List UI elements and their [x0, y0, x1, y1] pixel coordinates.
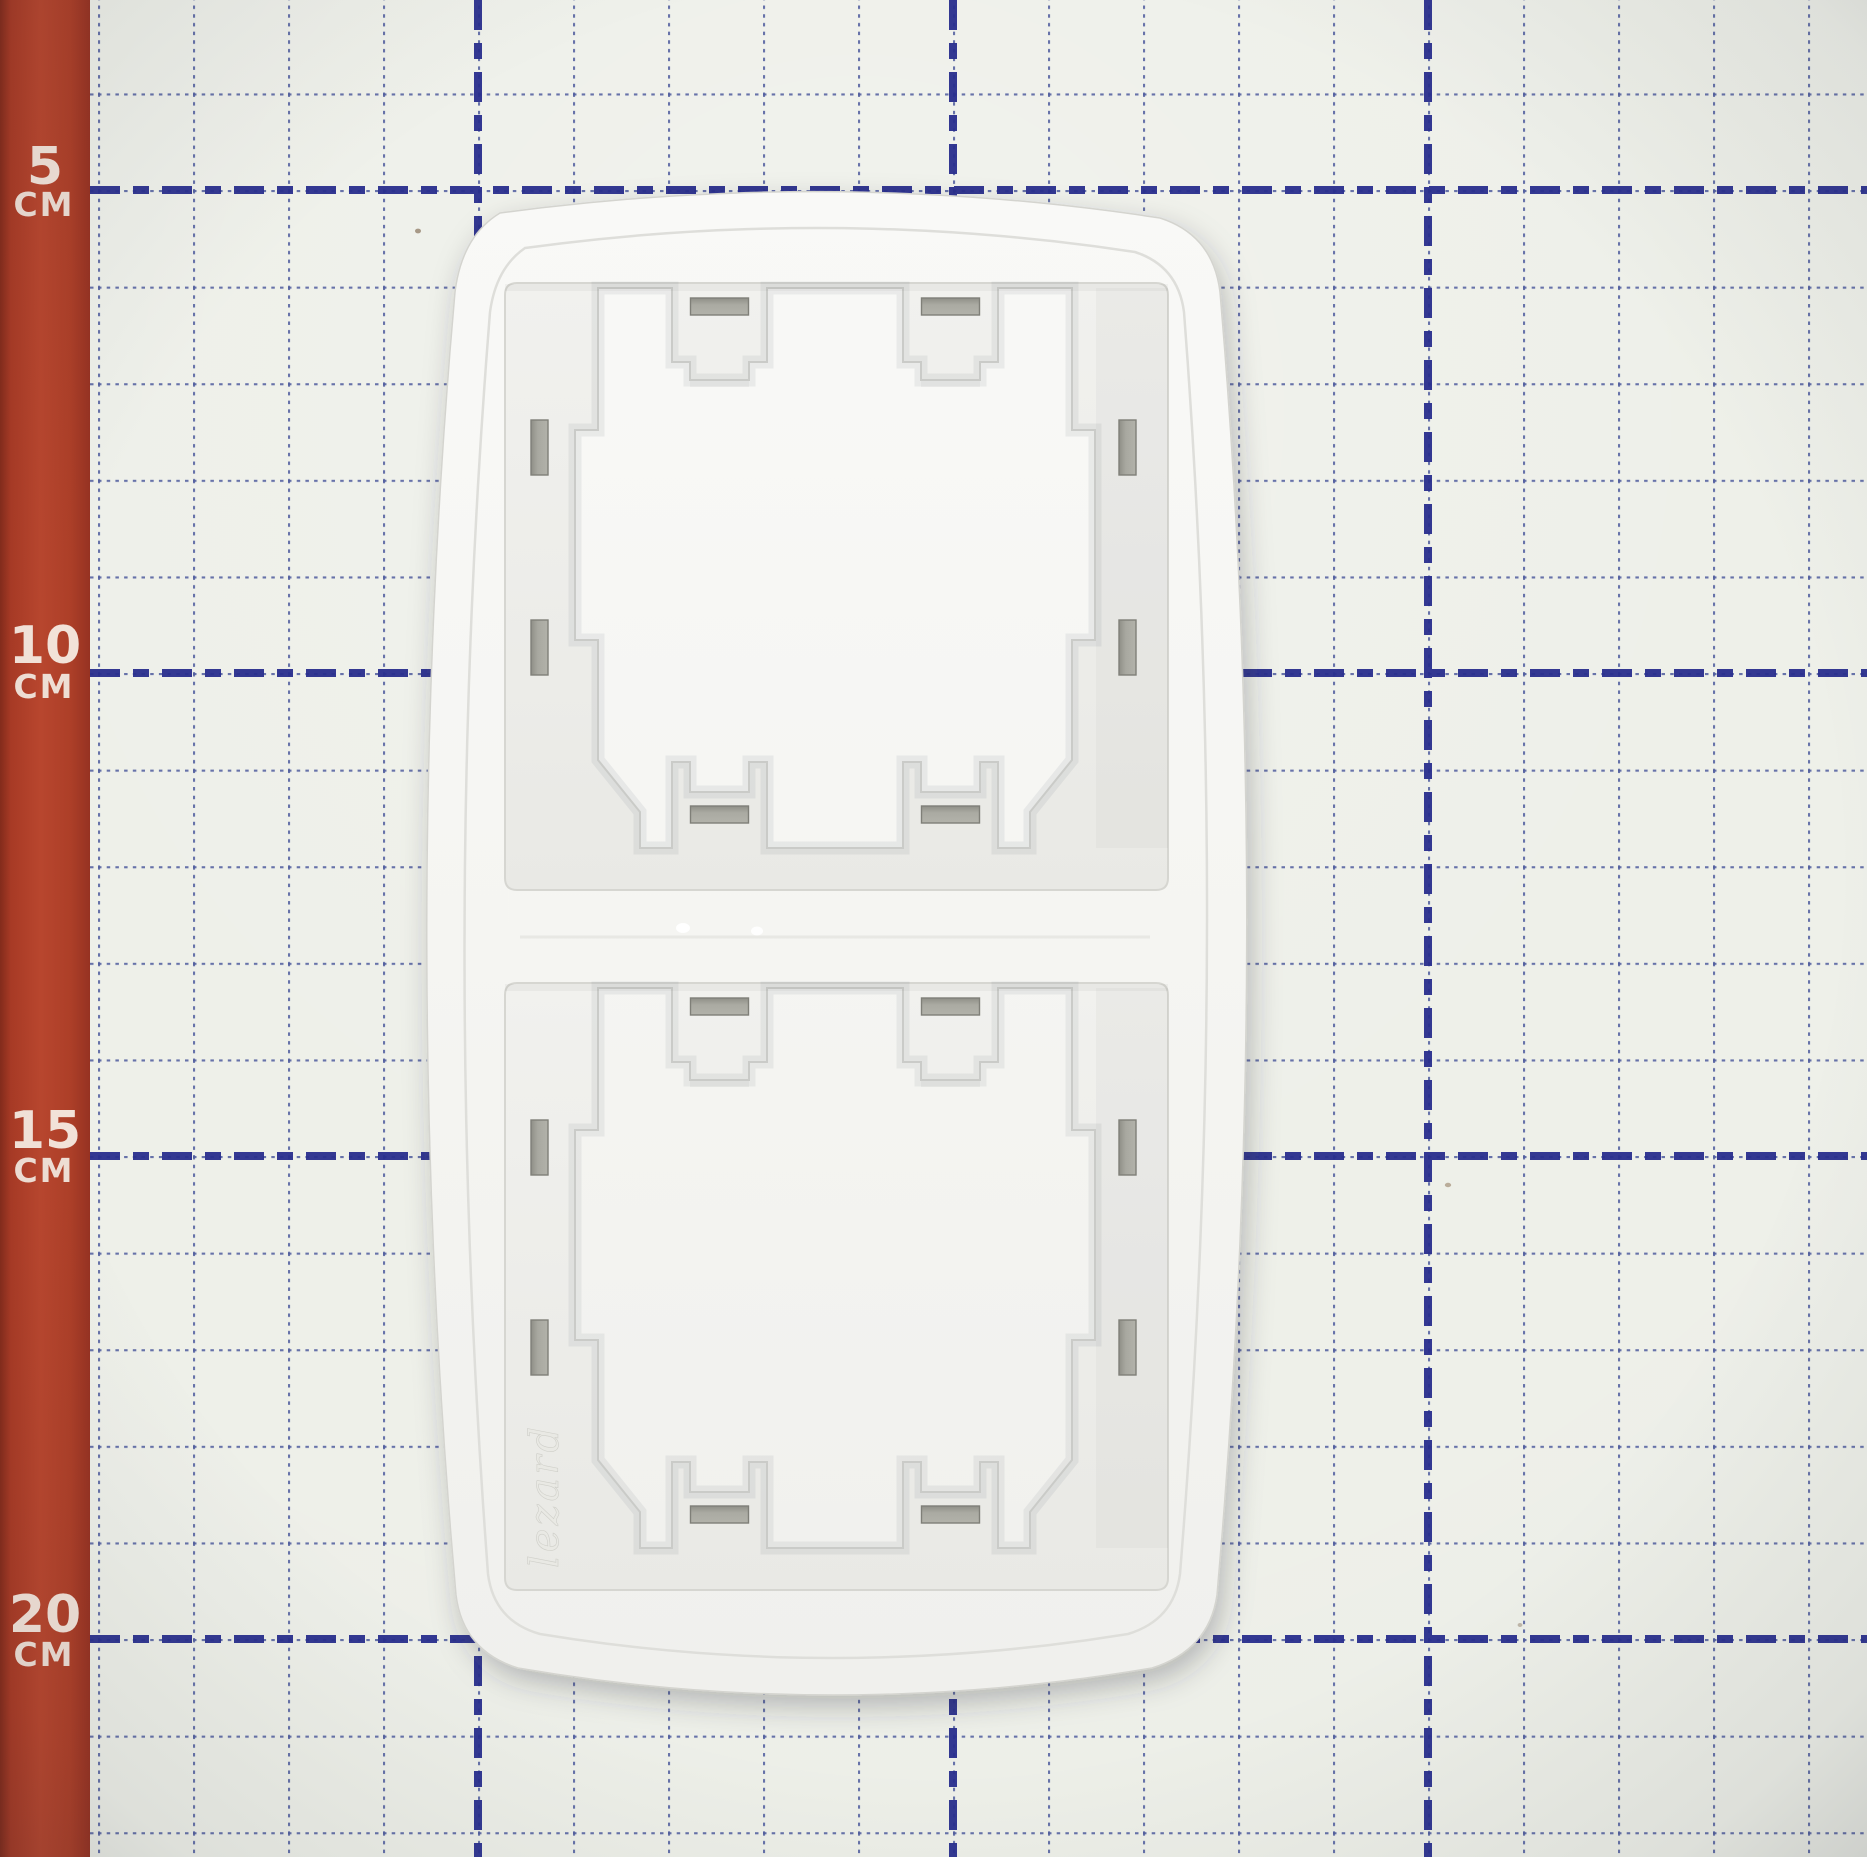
photo-svg: 5 СМ 10 СМ 15 СМ 20 СМ lezard — [0, 0, 1867, 1857]
photo-vignette — [0, 0, 1867, 1857]
photo-canvas: 5 СМ 10 СМ 15 СМ 20 СМ lezard — [0, 0, 1867, 1857]
